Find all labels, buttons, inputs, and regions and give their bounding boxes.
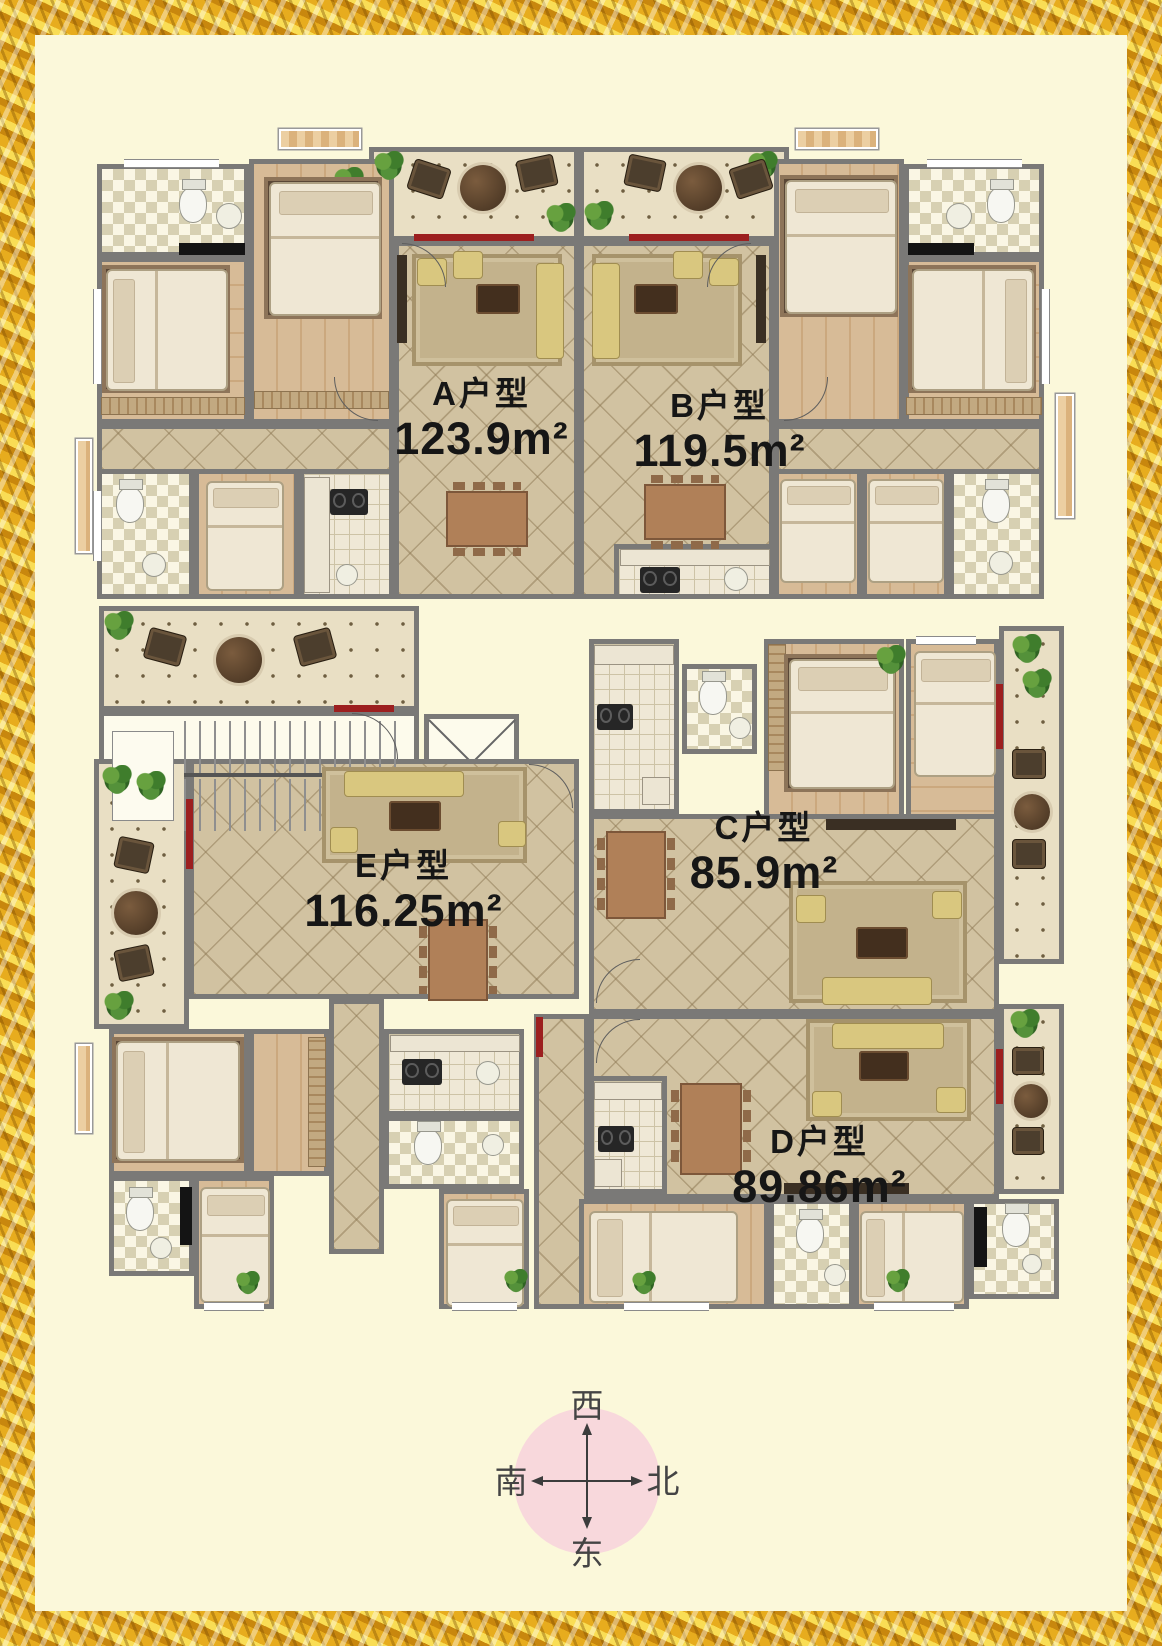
armchair: [1012, 1047, 1044, 1075]
coffee-table: [859, 1051, 909, 1081]
wash-basin: [824, 1264, 846, 1286]
toilet: [126, 1195, 154, 1231]
kitchen-counter: [594, 1082, 662, 1100]
armchair: [932, 891, 962, 919]
window: [874, 1302, 954, 1311]
unit-b-name: B户型: [627, 379, 812, 427]
window: [1041, 289, 1050, 384]
plant: [584, 201, 614, 231]
toilet: [987, 187, 1015, 223]
wash-basin: [142, 553, 166, 577]
toilet: [796, 1217, 824, 1253]
plant: [104, 611, 134, 641]
window: [927, 159, 1022, 168]
vanity-counter: [908, 243, 974, 255]
unit-b-area: 119.5m²: [627, 427, 812, 476]
red-sill: [629, 234, 749, 241]
window: [93, 491, 102, 561]
window-box: [279, 129, 361, 149]
unit-a-bathroom-2: [97, 469, 194, 599]
compass-label-west: 西: [571, 1389, 604, 1425]
plant: [1012, 634, 1042, 664]
kitchen-counter: [304, 477, 330, 593]
poster-background: A户型 123.9m² B户型 119.5m² C户型 85.9m² D户型 8…: [35, 35, 1127, 1611]
wash-basin: [1022, 1254, 1042, 1274]
double-bed: [860, 1211, 964, 1303]
armchair: [453, 251, 483, 279]
red-sill: [186, 799, 193, 869]
vanity-counter: [180, 1187, 192, 1245]
armchair: [673, 251, 703, 279]
coffee-table: [634, 284, 678, 314]
double-bed: [789, 659, 895, 789]
double-bed: [269, 182, 381, 316]
window: [916, 636, 976, 645]
plant: [546, 203, 576, 233]
coffee-table: [856, 927, 908, 959]
vanity-counter: [974, 1207, 987, 1267]
unit-a-area: 123.9m²: [384, 415, 579, 464]
red-sill: [536, 1017, 543, 1057]
window: [452, 1302, 517, 1311]
unit-c-label: C户型 85.9m²: [664, 801, 864, 898]
stove: [640, 567, 680, 593]
armchair: [1012, 1127, 1044, 1155]
unit-a-label: A户型 123.9m²: [384, 367, 579, 464]
round-table: [114, 891, 158, 935]
compass-label-south: 南: [495, 1464, 528, 1501]
kitchen-counter: [620, 549, 770, 566]
dining-table: [446, 491, 528, 547]
double-bed: [589, 1211, 738, 1303]
compass: 西 东 南 北: [477, 1371, 697, 1591]
window: [93, 289, 102, 384]
plant: [504, 1269, 528, 1293]
unit-b-hallway: [774, 424, 1044, 474]
unit-e-label: E户型 116.25m²: [296, 839, 511, 936]
fridge: [594, 1159, 622, 1187]
red-sill: [996, 1049, 1003, 1104]
wash-basin: [729, 717, 751, 739]
kitchen-sink: [724, 567, 748, 591]
wash-basin: [482, 1134, 504, 1156]
kitchen-counter: [594, 645, 674, 665]
window: [624, 1302, 709, 1311]
armchair: [796, 895, 826, 923]
window: [204, 1302, 264, 1311]
plant: [886, 1269, 910, 1293]
wardrobe: [308, 1037, 326, 1167]
wardrobe: [906, 397, 1042, 415]
round-table: [216, 637, 262, 683]
double-bed: [914, 651, 996, 777]
round-table: [1014, 1084, 1048, 1118]
armchair: [812, 1091, 842, 1117]
unit-e-name: E户型: [296, 839, 511, 887]
stove: [597, 704, 633, 730]
toilet: [414, 1129, 442, 1165]
compass-label-east: 东: [571, 1536, 604, 1573]
gold-foil-frame: A户型 123.9m² B户型 119.5m² C户型 85.9m² D户型 8…: [0, 0, 1162, 1646]
sofa: [592, 263, 620, 359]
toilet: [699, 679, 727, 715]
unit-c-area: 85.9m²: [664, 849, 864, 898]
double-bed: [785, 180, 897, 314]
unit-c-name: C户型: [664, 801, 864, 849]
sofa: [536, 263, 564, 359]
dining-table: [644, 484, 726, 540]
single-bed: [206, 481, 284, 591]
round-table: [676, 165, 722, 211]
unit-e-bathroom-2: [384, 1116, 524, 1189]
toilet: [1002, 1211, 1030, 1247]
stove: [402, 1059, 442, 1085]
plant: [102, 765, 132, 795]
plant: [1010, 1009, 1040, 1039]
vanity-counter: [179, 243, 245, 255]
wash-basin: [989, 551, 1013, 575]
toilet: [982, 487, 1010, 523]
unit-d-area: 89.86m²: [712, 1163, 927, 1212]
red-sill: [414, 234, 534, 241]
unit-d-label: D户型 89.86m²: [712, 1115, 927, 1212]
unit-b-label: B户型 119.5m²: [627, 379, 812, 476]
red-sill: [996, 684, 1003, 749]
unit-e-area: 116.25m²: [296, 887, 511, 936]
double-bed: [106, 269, 228, 391]
tv-cabinet: [756, 255, 766, 343]
plant: [236, 1271, 260, 1295]
double-bed: [116, 1041, 240, 1161]
wash-basin: [150, 1237, 172, 1259]
round-table: [460, 165, 506, 211]
window-box: [76, 1044, 92, 1133]
toilet: [179, 187, 207, 223]
armchair: [1012, 839, 1046, 869]
wardrobe: [101, 397, 245, 415]
compass-label-north: 北: [647, 1465, 680, 1501]
plant: [632, 1271, 656, 1295]
plant: [876, 645, 906, 675]
unit-a-name: A户型: [384, 367, 579, 415]
single-bed: [780, 479, 856, 583]
compass-rose: 西 东 南 北: [477, 1371, 697, 1591]
unit-d-name: D户型: [712, 1115, 927, 1163]
floor-plan: A户型 123.9m² B户型 119.5m² C户型 85.9m² D户型 8…: [84, 139, 1069, 1319]
window-box: [1056, 394, 1074, 518]
window-box: [796, 129, 878, 149]
armchair: [1012, 749, 1046, 779]
coffee-table: [389, 801, 441, 831]
sofa: [822, 977, 932, 1005]
kitchen-sink: [336, 564, 358, 586]
sofa: [344, 771, 464, 797]
dining-table: [606, 831, 666, 919]
plant: [136, 771, 166, 801]
coffee-table: [476, 284, 520, 314]
unit-e-corridor: [329, 999, 384, 1254]
window: [124, 159, 219, 168]
stove: [330, 489, 368, 515]
kitchen-counter: [390, 1035, 520, 1052]
stove: [598, 1126, 634, 1152]
round-table: [1014, 794, 1050, 830]
wash-basin: [946, 203, 972, 229]
toilet: [116, 487, 144, 523]
wash-basin: [216, 203, 242, 229]
sofa: [832, 1023, 944, 1049]
armchair: [936, 1087, 966, 1113]
kitchen-sink: [476, 1061, 500, 1085]
window-box: [76, 439, 92, 553]
double-bed: [912, 269, 1034, 391]
plant: [104, 991, 134, 1021]
plant: [1022, 669, 1052, 699]
single-bed: [868, 479, 944, 583]
red-sill: [334, 705, 394, 712]
unit-a-hallway: [97, 424, 394, 474]
